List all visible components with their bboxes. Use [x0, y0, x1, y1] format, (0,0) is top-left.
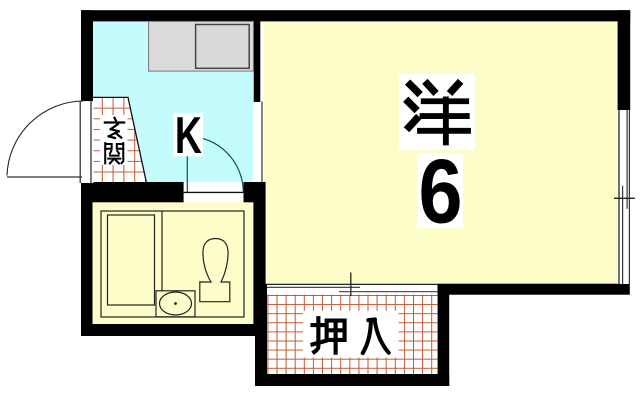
svg-text:6: 6 [418, 141, 462, 242]
svg-text:K: K [175, 106, 202, 165]
